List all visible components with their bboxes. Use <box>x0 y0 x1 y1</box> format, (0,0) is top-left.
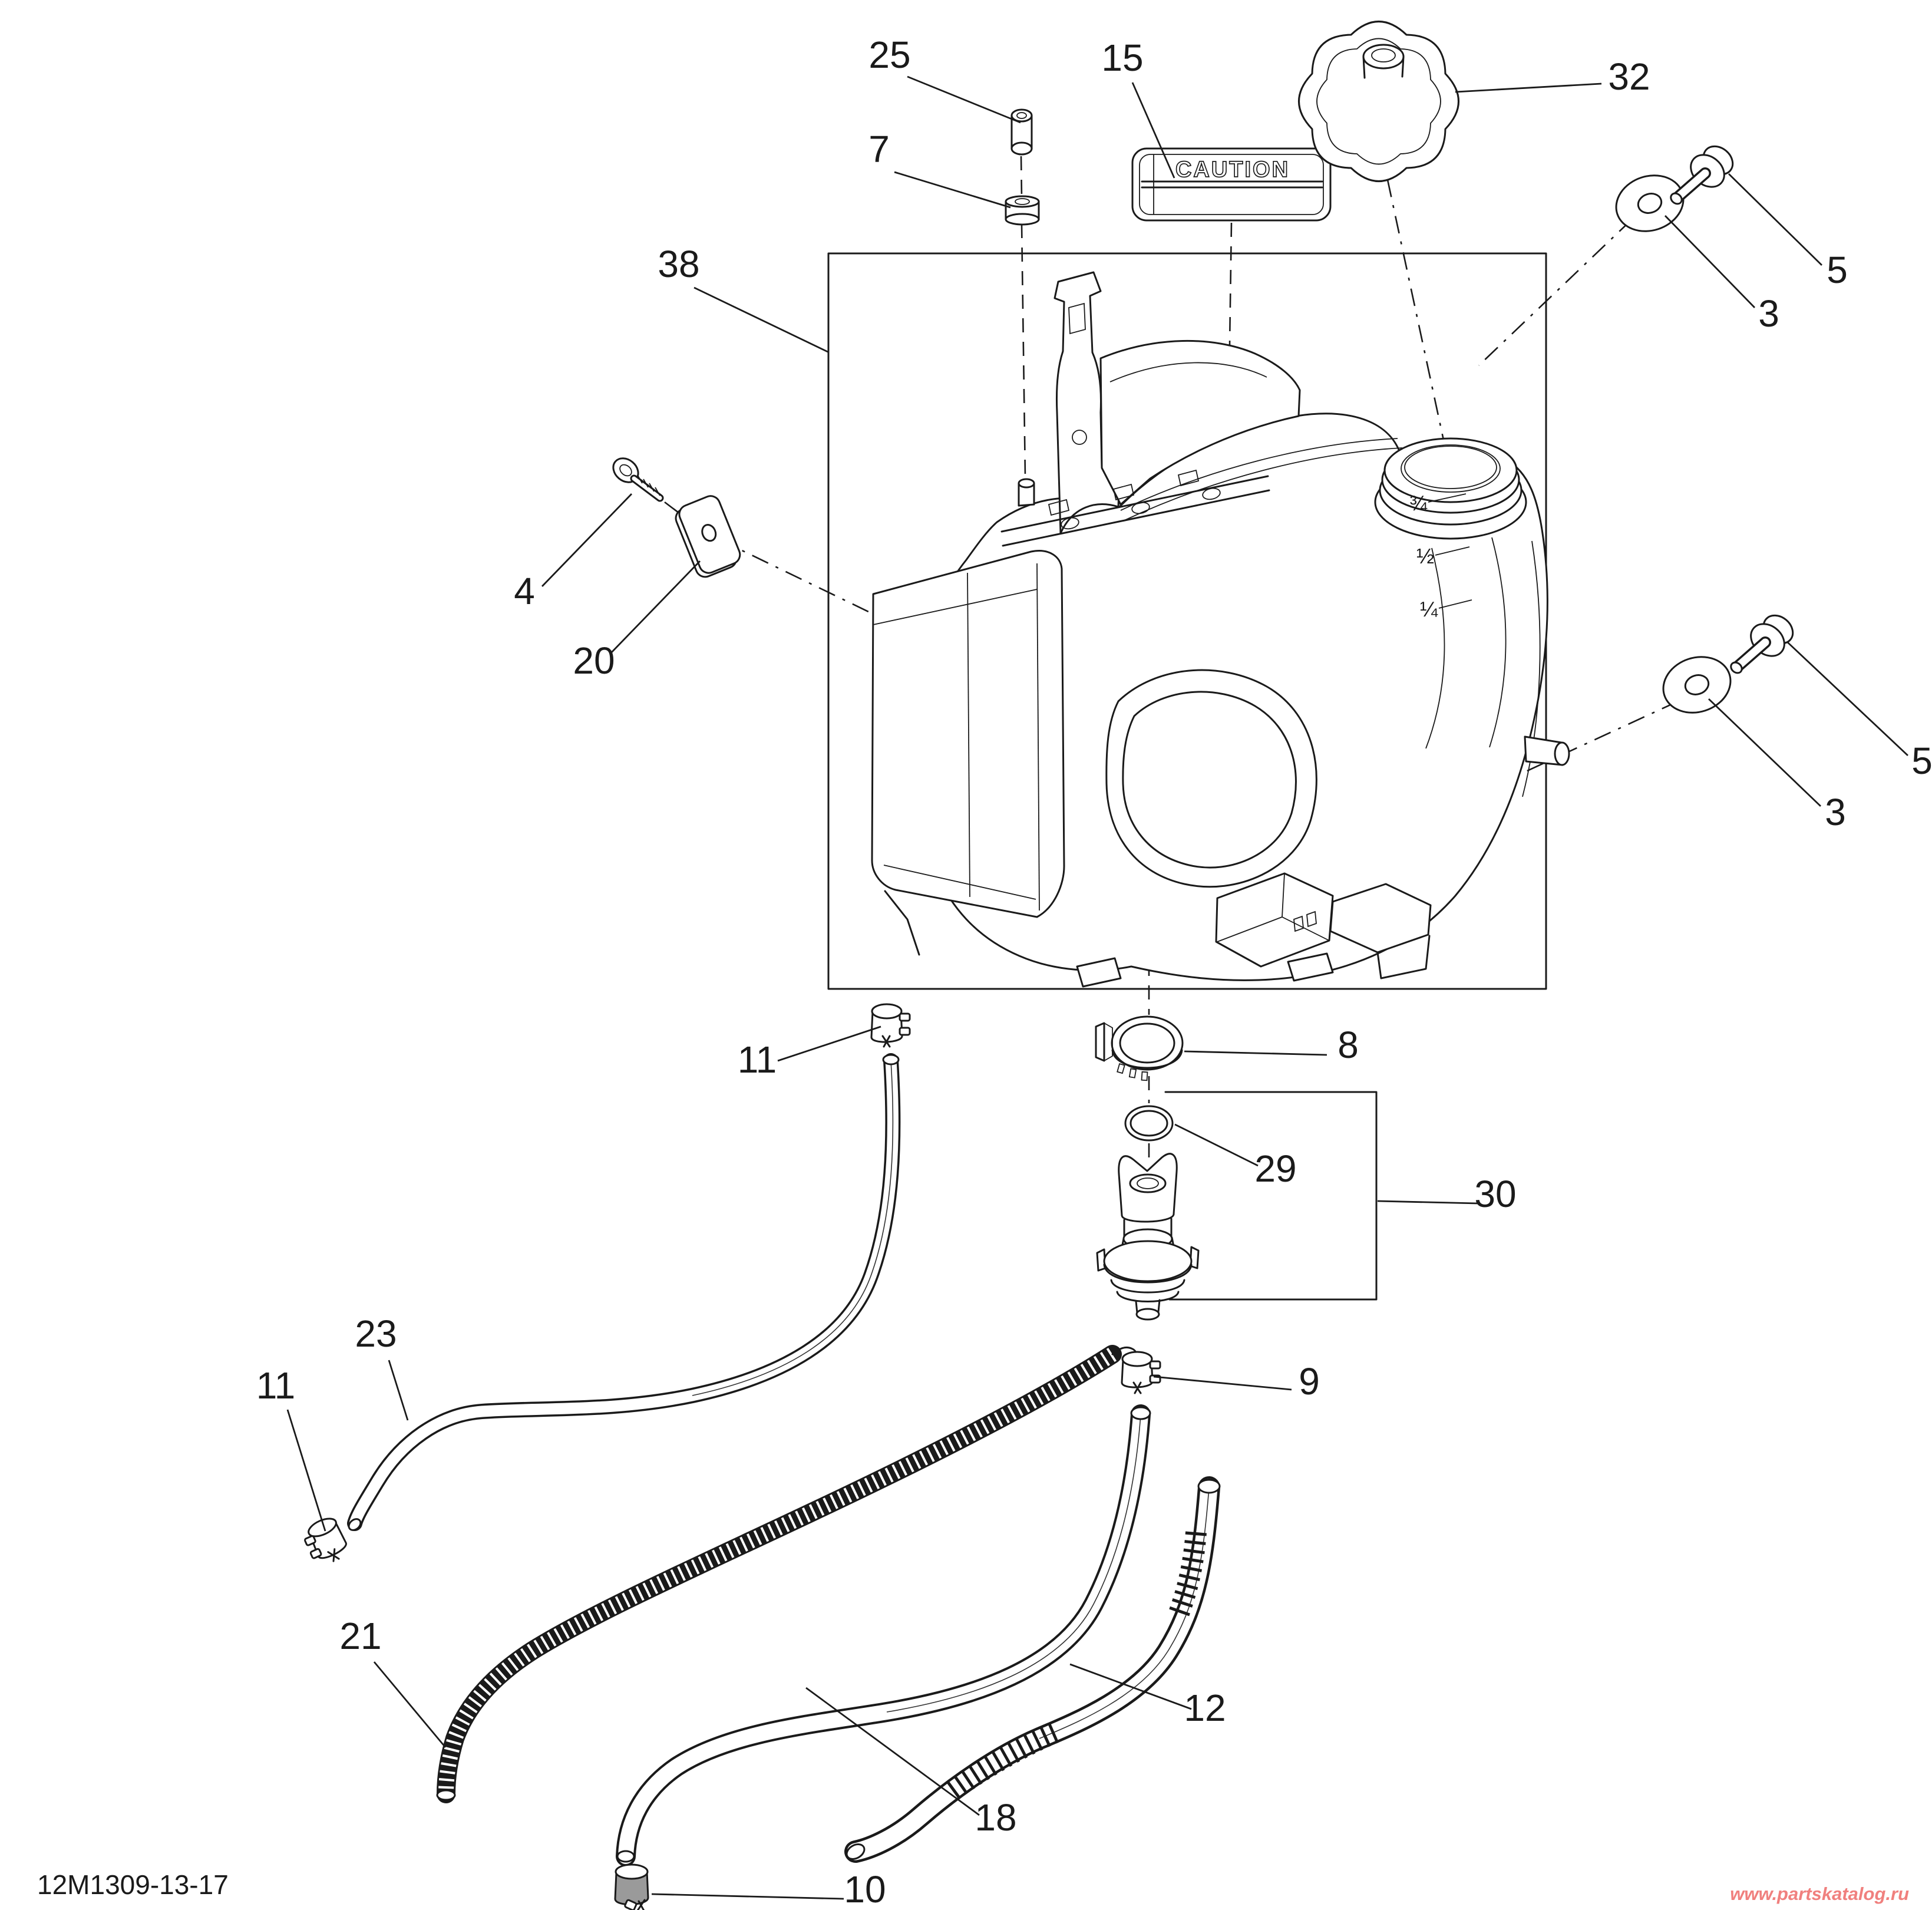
vent-fitting <box>1012 110 1032 154</box>
leader-grommet-nut-7 <box>894 172 1010 207</box>
callout-29-o-ring: 29 <box>1254 1147 1296 1190</box>
figure-code: 12M1309-13-17 <box>37 1869 229 1900</box>
spring-clamp-10 <box>615 1865 648 1910</box>
leader-spring-clamp-11 <box>778 1027 881 1061</box>
leader-spring-clamp-11 <box>288 1410 325 1531</box>
callout-18-hose: 18 <box>975 1796 1016 1839</box>
leader-check-valve-30 <box>1378 1201 1478 1203</box>
bolt-top <box>1669 141 1738 206</box>
leader-screw-4 <box>542 494 632 586</box>
callout-38-tank-assembly: 38 <box>658 243 699 285</box>
caution-text: CAUTION <box>1175 157 1290 182</box>
callout-10-spring-clamp: 10 <box>844 1868 886 1910</box>
caution-label: CAUTION <box>1132 149 1330 220</box>
leader-corrugated-conduit-21 <box>374 1662 445 1747</box>
leader-spring-clamp-9 <box>1154 1377 1292 1390</box>
callout-12-hose: 12 <box>1184 1687 1226 1729</box>
filler-cap <box>1299 22 1459 182</box>
filler-neck <box>1375 438 1526 539</box>
level-mark-¼: ¼ <box>1420 597 1438 621</box>
screw <box>609 453 660 498</box>
washer-mid <box>1656 648 1738 721</box>
spring-clamp-11b <box>300 1515 351 1568</box>
callout-21-corrugated-conduit: 21 <box>339 1615 381 1657</box>
fuel-tank-assembly <box>872 272 1569 987</box>
check-valve <box>1097 1154 1198 1319</box>
callout-9-spring-clamp: 9 <box>1299 1360 1320 1403</box>
backing-plate <box>672 493 744 580</box>
callout-3-washer: 3 <box>1758 292 1779 335</box>
leader-washer-3 <box>1709 699 1821 806</box>
leader-backing-plate-20 <box>610 561 700 654</box>
callout-15-caution-label: 15 <box>1101 37 1143 79</box>
watermark: www.partskatalog.ru <box>1730 1883 1909 1904</box>
leader-flanged-bolt-5 <box>1788 642 1908 756</box>
leader-hose-23 <box>389 1360 408 1420</box>
callout-4-screw: 4 <box>514 570 535 612</box>
hose-23 <box>346 1055 899 1532</box>
vent-pin <box>1019 479 1034 506</box>
leader-flanged-bolt-5 <box>1729 174 1822 265</box>
leader-spring-clamp-10 <box>652 1894 844 1899</box>
tank-spigot <box>1525 737 1569 765</box>
callout-7-grommet-nut: 7 <box>868 128 890 170</box>
tank-recess-outer <box>1107 670 1317 887</box>
callout-5-flanged-bolt: 5 <box>1827 249 1848 291</box>
callout-23-hose: 23 <box>355 1312 397 1355</box>
callout-3-washer: 3 <box>1825 791 1846 833</box>
callout-5-flanged-bolt: 5 <box>1911 740 1932 782</box>
leader-filler-cap-32 <box>1455 84 1601 92</box>
callout-30-check-valve: 30 <box>1474 1173 1516 1215</box>
o-ring <box>1125 1106 1173 1140</box>
callout-25-vent-fitting: 25 <box>868 34 910 76</box>
level-mark-¾: ¾ <box>1409 491 1428 515</box>
parts-diagram-page: CAUTION <box>0 0 1932 1910</box>
callout-20-backing-plate: 20 <box>573 639 615 682</box>
leader-washer-3 <box>1665 216 1755 308</box>
gear-clamp <box>1096 1017 1183 1080</box>
callout-11-spring-clamp: 11 <box>738 1038 777 1081</box>
leader-o-ring-29 <box>1175 1124 1258 1166</box>
spring-clamp-11a <box>871 1004 910 1047</box>
callout-11-spring-clamp: 11 <box>256 1364 295 1407</box>
leader-vent-fitting-25 <box>907 77 1021 123</box>
exploded-diagram-canvas: CAUTION <box>0 0 1932 1910</box>
leader-tank-assembly-38 <box>694 288 829 352</box>
callout-32-filler-cap: 32 <box>1608 55 1650 98</box>
grommet-nut <box>1006 196 1039 225</box>
level-mark-½: ½ <box>1416 544 1434 568</box>
callout-8-gear-clamp: 8 <box>1337 1024 1359 1066</box>
leader-gear-clamp-8 <box>1184 1051 1327 1055</box>
spring-clamp-9 <box>1122 1352 1160 1393</box>
